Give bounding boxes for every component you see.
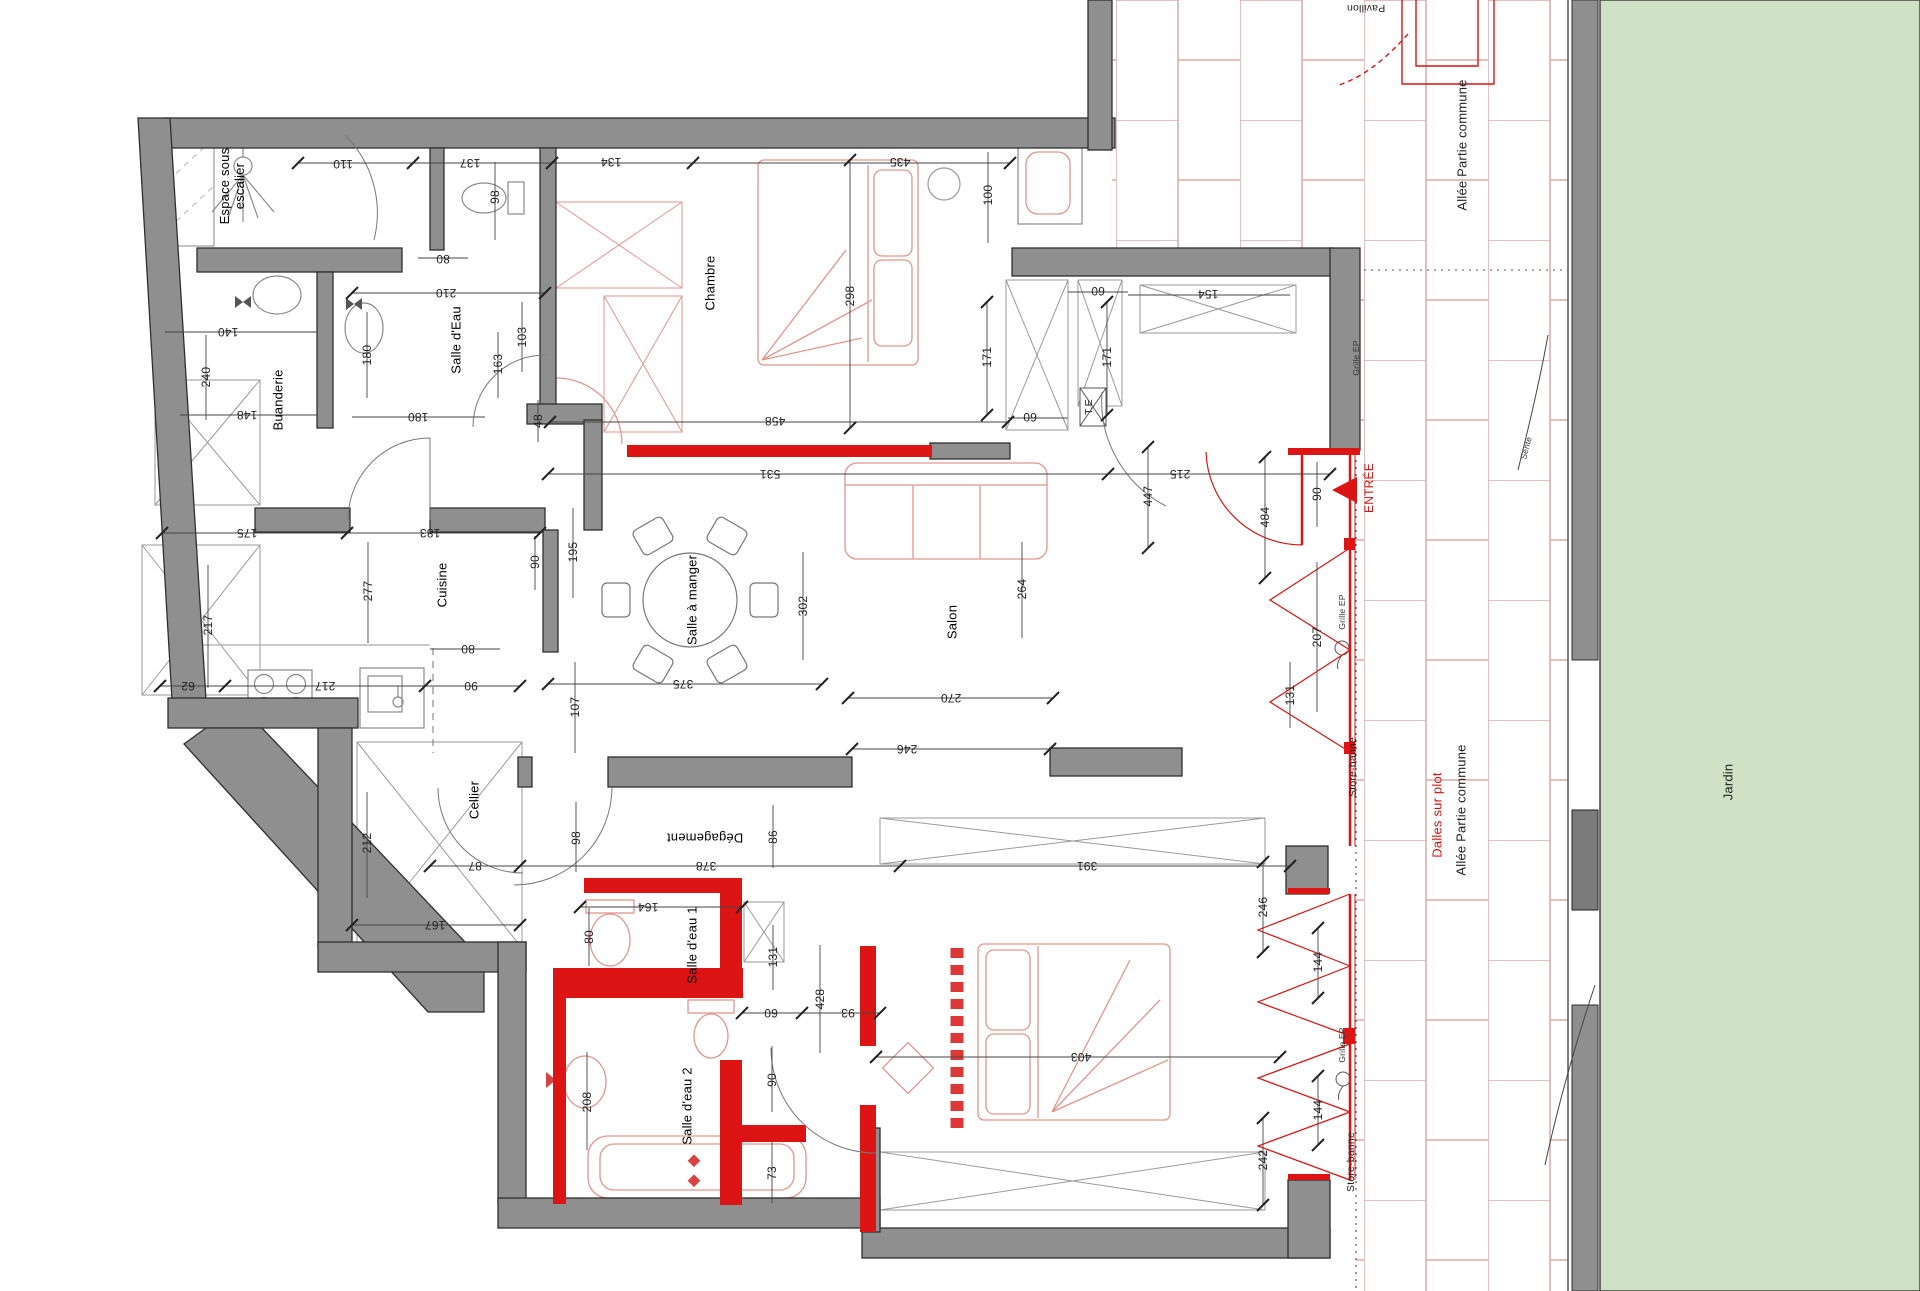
room-label-salle-eau: Salle d'Eau (449, 306, 464, 374)
dim-label: 242 (1256, 1150, 1270, 1171)
toilet-2 (590, 914, 630, 966)
desk (1018, 138, 1082, 224)
dim-label: 86 (766, 830, 780, 844)
dim-label: 210 (436, 286, 457, 300)
garden-area (1600, 0, 1920, 1291)
dim-label: 154 (1198, 287, 1219, 301)
room-label-salon: Salon (945, 605, 960, 639)
dim-label: 80 (436, 252, 450, 266)
sofa (845, 463, 1047, 559)
floor-plan-page: Espace sous escalier Salle d'Eau Buander… (0, 0, 1920, 1291)
room-label-salle-a-manger: Salle à manger (685, 555, 700, 645)
dim-label: 110 (333, 157, 353, 171)
dim-label: 87 (468, 859, 482, 873)
room-label-chambre: Chambre (703, 256, 718, 311)
common-path-label-bottom: Allée Partie commune (1454, 744, 1469, 875)
dim-label: 137 (460, 156, 481, 170)
side-table (928, 168, 960, 200)
slabs-label: Dalles sur plot (1430, 772, 1445, 857)
desk-chair (1026, 152, 1070, 214)
dim-label: 93 (841, 1006, 855, 1020)
dim-label: 264 (1015, 579, 1029, 600)
room-label-cuisine: Cuisine (435, 563, 450, 608)
dim-label: 428 (813, 989, 827, 1010)
dim-label: 391 (1077, 859, 1098, 873)
dim-label: 171 (1100, 347, 1114, 368)
room-label-espace-sous-escalier: Espace sous escalier (218, 141, 248, 231)
room-label-degagement: Dégagement (667, 831, 743, 846)
dim-label: 378 (696, 859, 717, 873)
dim-label: 246 (1256, 897, 1270, 918)
dim-label: 134 (601, 155, 622, 169)
floor-plan-drawing (0, 0, 1920, 1291)
room-label-salle-eau-1: Salle d'eau 1 (685, 906, 700, 983)
site-layer (1112, 0, 1920, 1291)
dim-label: 60 (1091, 284, 1105, 298)
dim-label: 171 (980, 347, 994, 368)
dim-label: 240 (199, 367, 213, 388)
dim-label: 270 (941, 691, 962, 705)
dim-label: 144 (1311, 1100, 1325, 1121)
room-label-cellier: Cellier (467, 781, 482, 819)
dim-label: 60 (764, 1006, 778, 1020)
electrical-panel-label: T.E (1083, 399, 1095, 415)
dim-label: 98 (488, 190, 502, 204)
dim-label: 80 (461, 642, 475, 656)
dim-label: 207 (1310, 627, 1324, 648)
dim-label: 435 (890, 155, 911, 169)
dim-label: 131 (1283, 685, 1297, 706)
dim-label: 60 (1023, 410, 1037, 424)
dim-label: 100 (981, 185, 995, 206)
dim-label: 90 (464, 679, 478, 693)
dim-label: 148 (237, 408, 258, 422)
garden-label: Jardin (1721, 764, 1736, 801)
dim-label: 144 (1311, 952, 1325, 973)
dim-label: 215 (1170, 467, 1191, 481)
room-label-salle-eau-2: Salle d'eau 2 (680, 1067, 695, 1144)
dim-label: 458 (765, 414, 786, 428)
windows-layer (957, 452, 1355, 1180)
dim-label: 164 (638, 900, 659, 914)
pavilion-label: Pavillon (1347, 2, 1385, 14)
dim-label: 246 (897, 742, 918, 756)
dim-label: 48 (531, 414, 545, 428)
awning-label-1: Store-banne (1347, 737, 1359, 797)
dim-label: 98 (569, 831, 583, 845)
dim-label: 175 (237, 526, 258, 540)
bed-2 (978, 944, 1170, 1120)
dim-label: 103 (515, 327, 529, 348)
red-accents (546, 1072, 700, 1187)
dim-label: 167 (425, 918, 446, 932)
dim-label: 140 (218, 325, 239, 339)
dim-label: 302 (796, 596, 810, 617)
room-label-buanderie: Buanderie (271, 369, 286, 430)
dim-label: 375 (673, 677, 694, 691)
rain-grate-label-3: Grille EP (1337, 1027, 1347, 1062)
dim-label: 195 (566, 542, 580, 563)
dim-label: 208 (580, 1092, 594, 1113)
dim-label: 62 (181, 679, 195, 693)
dim-label: 180 (408, 410, 429, 424)
dim-label: 212 (360, 833, 374, 854)
entry-label: ENTRÉE (1362, 463, 1376, 513)
dim-label: 298 (843, 286, 857, 307)
common-path-label-top: Allée Partie commune (1455, 79, 1470, 210)
rain-grate-label-2: Grille EP (1337, 594, 1347, 629)
dim-label: 217 (315, 679, 336, 693)
entry-arrow-icon (1332, 477, 1357, 503)
rain-grate-label-1: Grille EP (1351, 340, 1361, 375)
dim-label: 90 (765, 1073, 779, 1087)
dim-label: 73 (765, 1166, 779, 1180)
dim-label: 131 (766, 947, 780, 968)
dim-label: 217 (201, 615, 215, 636)
washbasin-1 (253, 276, 301, 314)
dim-label: 447 (1141, 486, 1155, 507)
dim-label: 484 (1258, 507, 1272, 528)
dim-label: 180 (360, 345, 374, 366)
dim-label: 80 (582, 930, 596, 944)
dim-label: 90 (528, 555, 542, 569)
dim-label: 107 (568, 697, 582, 718)
dim-label: 277 (361, 581, 375, 602)
toilet-3 (694, 1014, 728, 1058)
nightstand (883, 1043, 934, 1094)
dim-label: 183 (420, 526, 441, 540)
awning-label-2: Store-banne (1345, 1132, 1357, 1192)
site-wall (1572, 0, 1598, 660)
dim-label: 163 (491, 354, 505, 375)
dim-label: 90 (1310, 487, 1324, 501)
dim-label: 403 (1071, 1050, 1092, 1064)
dim-label: 531 (760, 467, 781, 481)
